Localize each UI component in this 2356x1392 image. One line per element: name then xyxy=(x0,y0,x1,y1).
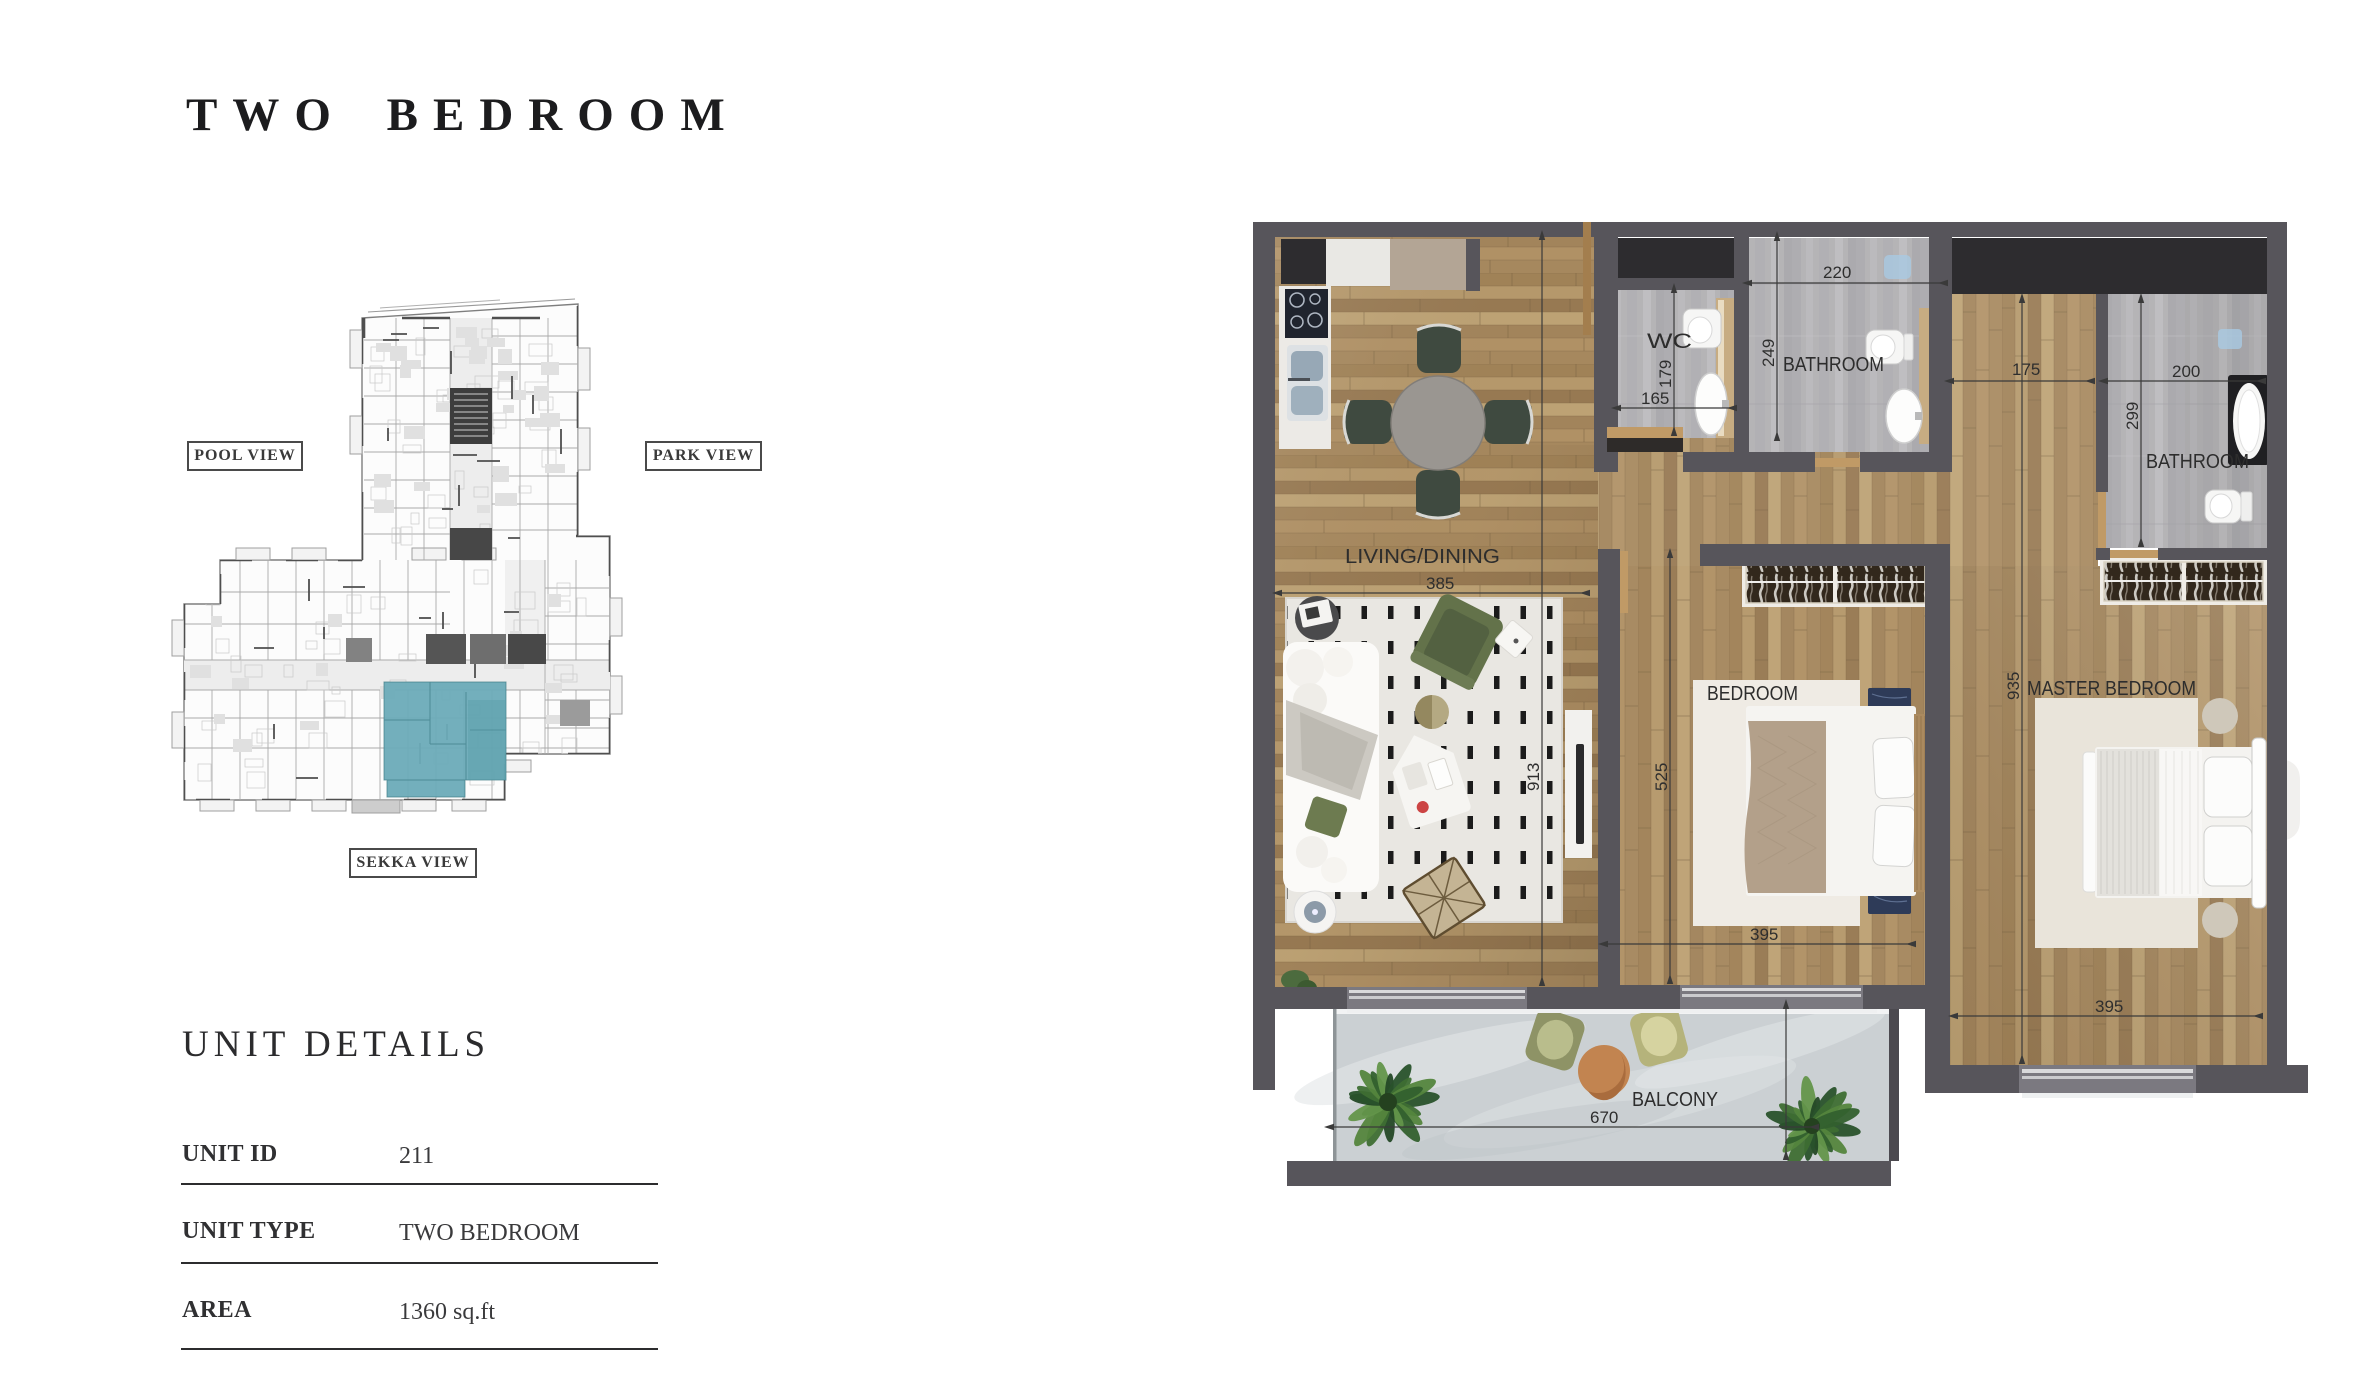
svg-text:165: 165 xyxy=(1641,389,1669,408)
svg-text:670: 670 xyxy=(1590,1108,1618,1127)
svg-text:385: 385 xyxy=(1426,574,1454,593)
svg-text:200: 200 xyxy=(2172,362,2200,381)
svg-text:395: 395 xyxy=(1750,925,1778,944)
svg-text:BATHROOM: BATHROOM xyxy=(1783,354,1884,376)
svg-text:BALCONY: BALCONY xyxy=(1632,1089,1718,1111)
svg-text:395: 395 xyxy=(2095,997,2123,1016)
svg-text:BEDROOM: BEDROOM xyxy=(1707,683,1798,705)
svg-text:BATHROOM: BATHROOM xyxy=(2146,451,2249,473)
svg-text:175: 175 xyxy=(2012,360,2040,379)
svg-text:220: 220 xyxy=(1823,263,1851,282)
svg-text:249: 249 xyxy=(1759,339,1778,367)
svg-text:WC: WC xyxy=(1647,330,1692,353)
svg-text:299: 299 xyxy=(2123,402,2142,430)
svg-text:935: 935 xyxy=(2004,672,2023,700)
svg-text:913: 913 xyxy=(1524,763,1543,791)
svg-text:MASTER BEDROOM: MASTER BEDROOM xyxy=(2027,678,2196,700)
svg-text:179: 179 xyxy=(1656,360,1675,388)
svg-text:LIVING/DINING: LIVING/DINING xyxy=(1345,546,1500,568)
svg-text:525: 525 xyxy=(1652,763,1671,791)
